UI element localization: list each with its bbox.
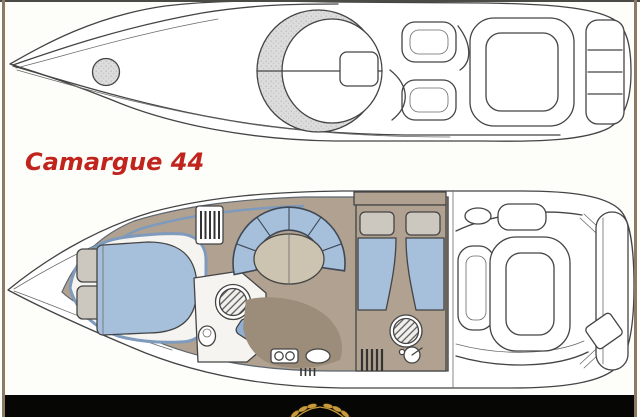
model-title: Camargue 44 (25, 148, 204, 176)
page-border-left (2, 0, 5, 417)
interior-plan (8, 191, 634, 388)
cockpit-u-sofa (490, 237, 570, 351)
boat-brochure-page: Camargue 44 (0, 0, 640, 417)
cockpit-l-seat (458, 246, 494, 330)
mid-cabin (354, 192, 446, 371)
page-border-right (634, 0, 637, 417)
deck-plan (10, 1, 631, 141)
bow-hatch-icon (93, 59, 120, 86)
pillow (406, 212, 440, 235)
cockpit-table (340, 52, 378, 86)
pillow (360, 212, 394, 235)
companionway-steps-icon (196, 206, 223, 244)
laurel-wreath-icon (260, 398, 380, 417)
footer-bar (5, 395, 634, 417)
boat-plans-drawing (0, 0, 640, 417)
forward-berth (97, 242, 197, 335)
page-border-top (0, 0, 640, 2)
